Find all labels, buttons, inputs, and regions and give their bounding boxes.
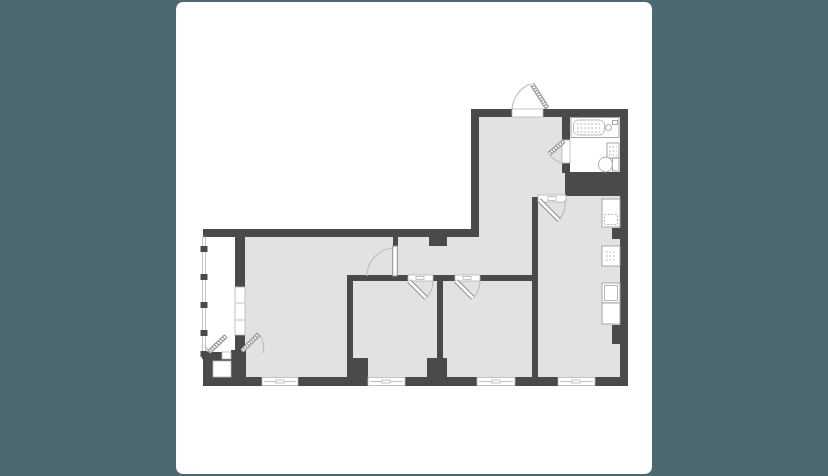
kitchen-unit-counter-2 — [602, 303, 620, 324]
bottom-wall-3 — [405, 377, 477, 386]
right-wall — [620, 109, 628, 386]
corridor-south-wall-3 — [480, 275, 538, 281]
door-swing — [512, 84, 530, 109]
bottom-wall-5 — [595, 377, 628, 386]
corridor-south-wall-1 — [347, 275, 408, 281]
top-wall-right-of-entry — [543, 109, 628, 117]
kitchen-unit-hob — [602, 246, 620, 266]
kitchen-counter — [602, 199, 620, 324]
window-icon — [262, 378, 298, 386]
bedroom-divider-pier — [427, 358, 447, 377]
glazing-mullion-5 — [201, 351, 208, 357]
livingroom-east-wall-pier — [347, 358, 368, 377]
bottom-wall-4 — [515, 377, 558, 386]
toilet-icon — [599, 157, 620, 172]
kitchen-west-wall — [532, 197, 538, 377]
left-section-top-wall — [203, 229, 479, 237]
entry-threshold — [512, 109, 543, 117]
balcony-window-icon — [235, 287, 245, 335]
upper-left-wall — [471, 109, 479, 237]
corridor-north-pier-large — [429, 237, 447, 246]
window-icon — [477, 378, 515, 386]
bedroom1-threshold — [408, 275, 433, 281]
washbasin-icon — [607, 143, 619, 158]
bottom-wall-2 — [298, 377, 368, 386]
glazing-mullion-4 — [201, 330, 208, 336]
balcony-separator-upper — [235, 237, 245, 287]
right-wall-pier-lower — [612, 325, 620, 344]
glazing-mullion-3 — [201, 302, 208, 308]
door-entry — [512, 84, 547, 109]
window-icon — [368, 378, 405, 386]
bathroom-left-wall-upper — [562, 117, 570, 140]
kitchen-unit-counter — [602, 283, 620, 303]
glazing-mullion-2 — [201, 274, 208, 280]
right-wall-pier-upper — [612, 228, 620, 239]
bottom-left-niche — [213, 361, 231, 377]
screenshot-stage — [0, 0, 828, 476]
window-icon — [558, 378, 595, 386]
corridor-north-pier-small — [393, 237, 398, 246]
bathtub-icon — [571, 118, 619, 138]
door-balcony-a — [205, 336, 226, 352]
bathroom-bottom-wall — [565, 172, 628, 196]
glazing-mullion-1 — [201, 246, 208, 252]
kitchen-unit-fridge — [602, 199, 620, 227]
floor-plan — [0, 0, 828, 476]
balcony-threshold — [222, 352, 231, 359]
corridor-south-wall-2 — [433, 275, 455, 281]
bedroom2-threshold — [455, 275, 480, 281]
bathroom-left-wall-lower — [562, 163, 570, 173]
balcony-glazing — [201, 237, 208, 357]
